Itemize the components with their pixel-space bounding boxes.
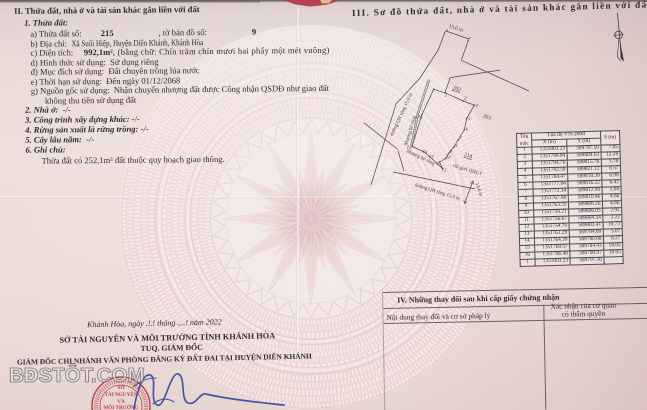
svg-text:TÀI NGUYÊN: TÀI NGUYÊN: [104, 390, 137, 398]
svg-text:VÀ: VÀ: [117, 397, 125, 405]
